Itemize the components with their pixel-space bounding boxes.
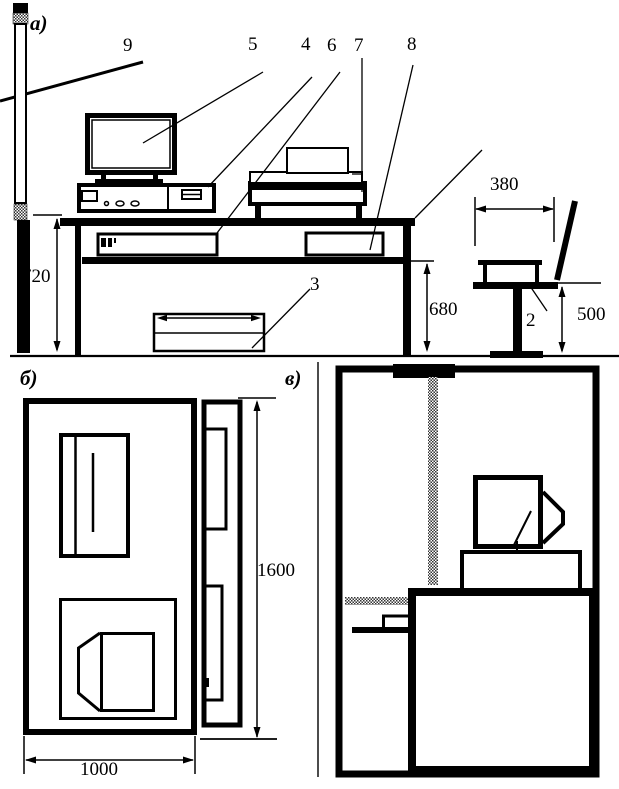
callout-shelf-unit: 8 [407,35,417,54]
monitor [88,116,175,184]
callout-chair: 2 [526,311,536,330]
panel-a-label: а) [30,13,48,34]
dimension-label-720: 720 [22,267,51,286]
panel-a-drawing [0,3,619,358]
callout-footrest: 3 [310,275,320,294]
callout-monitor: 5 [248,35,258,54]
callout-system-unit: 4 [301,35,311,54]
system-unit [79,185,214,211]
monitor-plan [61,600,176,719]
footrest [154,314,264,351]
system-unit-plan [61,435,128,556]
leader-desk [415,150,482,218]
diagram-linework [0,0,619,789]
printer [248,148,367,218]
room-top-thick-segment [393,364,455,378]
dimension-label-680: 680 [429,300,458,319]
panel-b-label: б) [20,368,37,389]
callout-printer: 7 [354,36,364,55]
panel-v-label: в) [285,368,301,389]
side-extension-plan [202,402,240,725]
dimension-label-380: 380 [490,175,519,194]
dimension-380 [475,197,554,246]
light-strip-horizontal [345,597,408,605]
dimension-label-1000: 1000 [80,760,118,779]
dimension-label-500: 500 [577,305,606,324]
light-strip-vertical [428,377,438,585]
keyboard [98,234,217,255]
leader-chair [530,286,547,311]
desk-room [412,592,593,770]
panel-b-drawing [24,398,277,774]
chair [473,201,575,358]
callout-side-screen: 9 [123,36,133,55]
side-screen [0,3,143,353]
leader-monitor [143,72,263,143]
system-unit-room [462,552,580,590]
panel-v-drawing [339,364,596,774]
workstation-diagram: а) 9 5 4 6 7 8 3 2 380 500 680 720 б) в)… [0,0,619,789]
dimension-label-1600: 1600 [257,561,295,580]
callout-keyboard: 6 [327,36,337,55]
